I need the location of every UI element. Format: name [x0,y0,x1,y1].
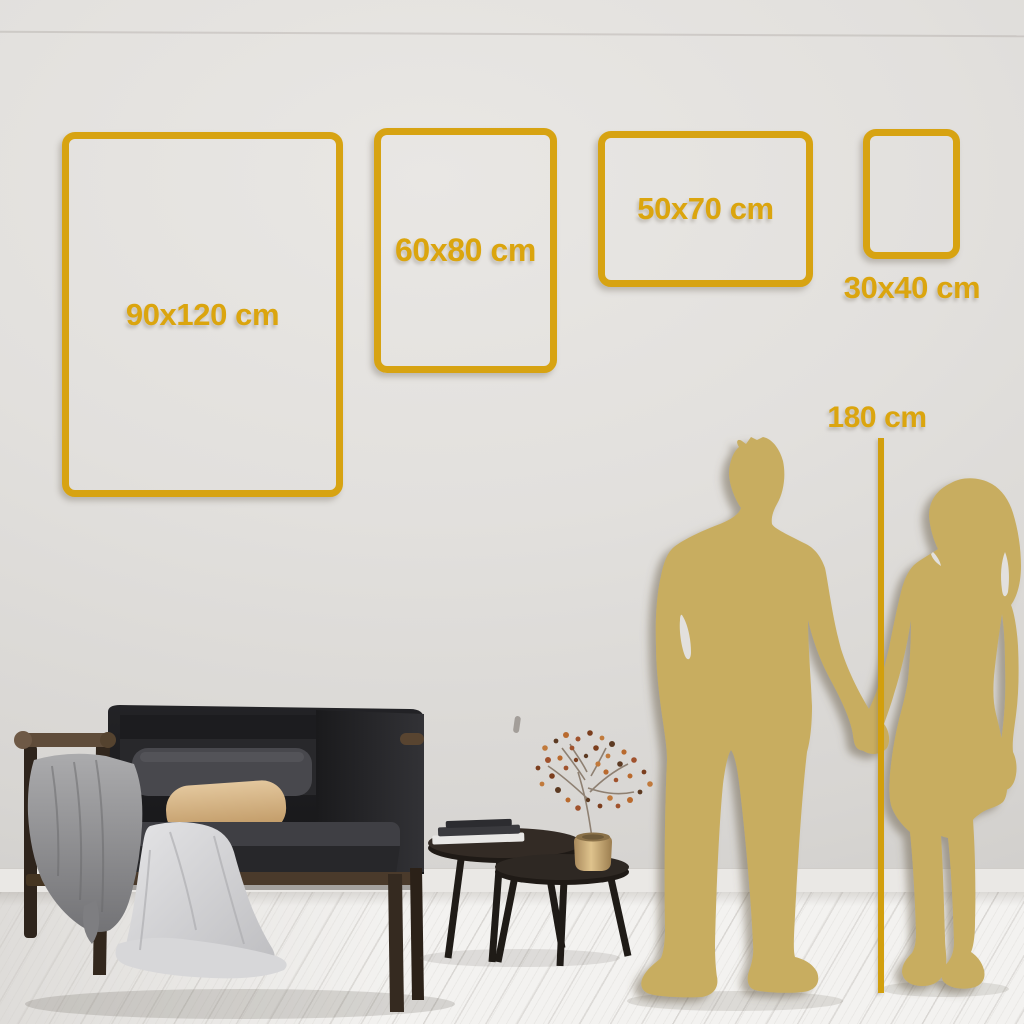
man-silhouette [641,437,880,997]
height-measure-line [878,438,884,993]
size-guide-scene: 90x120 cm 60x80 cm 50x70 cm 30x40 cm [0,0,1024,1024]
couple-silhouettes [0,0,1024,1024]
